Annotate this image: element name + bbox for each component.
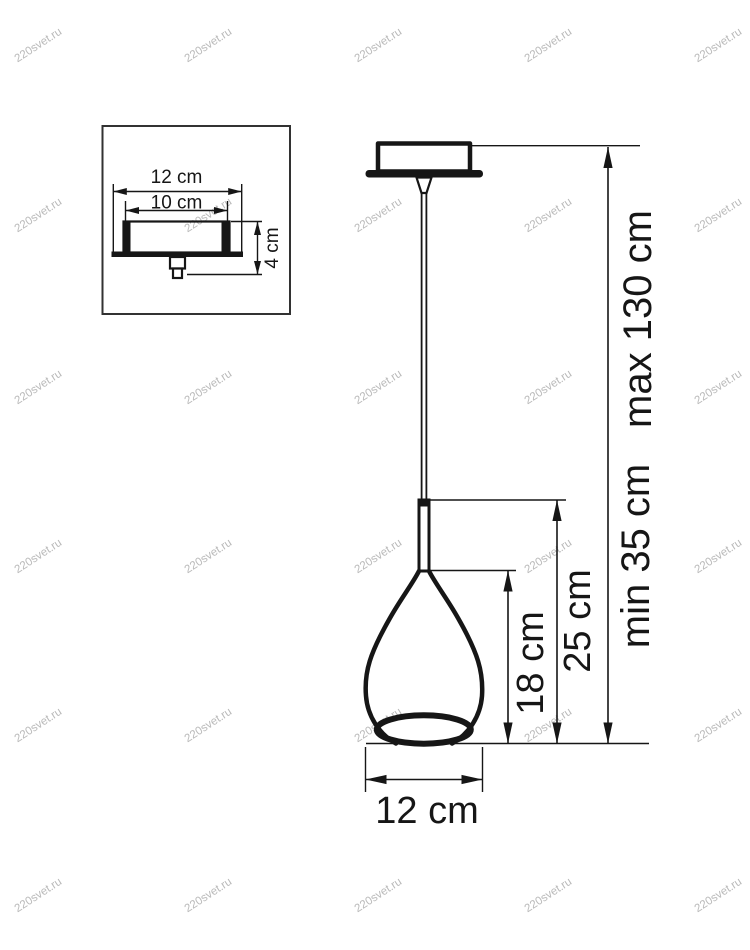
watermark-text: 220svet.ru xyxy=(353,537,405,576)
pendant-drawing xyxy=(366,144,484,744)
main-dimensions: 18 cm 25 cm min 35 cm max 130 cm 12 cm xyxy=(366,146,661,832)
watermark-text: 220svet.ru xyxy=(183,537,235,576)
cord-strain-relief xyxy=(417,178,432,194)
watermark-text: 220svet.ru xyxy=(183,368,235,407)
watermark-text: 220svet.ru xyxy=(353,26,405,65)
arrowhead-down xyxy=(254,261,261,275)
watermark-text: 220svet.ru xyxy=(693,368,745,407)
watermark-text: 220svet.ru xyxy=(353,196,405,235)
watermark-text: 220svet.ru xyxy=(183,876,235,915)
watermark-text: 220svet.ru xyxy=(523,876,575,915)
arrowhead-down xyxy=(603,723,612,744)
watermark-text: 220svet.ru xyxy=(693,196,745,235)
watermark-text: 220svet.ru xyxy=(693,537,745,576)
inset-canopy-body xyxy=(124,222,230,253)
suspension-min-label: min 35 cm xyxy=(614,464,658,649)
watermark-text: 220svet.ru xyxy=(353,368,405,407)
shade-height-label: 18 cm xyxy=(510,611,552,714)
shade-assembly-height-label: 25 cm xyxy=(557,569,599,672)
arrowhead-right xyxy=(228,188,242,195)
arrowhead-up xyxy=(503,571,512,592)
arrowhead-up xyxy=(603,147,612,168)
arrowhead-left xyxy=(126,207,140,214)
shade-width-label: 12 cm xyxy=(375,790,478,832)
watermark-text: 220svet.ru xyxy=(183,26,235,65)
shade-bottom-opening-rim xyxy=(377,715,471,743)
arrowhead-down xyxy=(503,723,512,744)
inset-inner-width-label: 10 cm xyxy=(151,193,203,214)
diagram-page: 220svet.ru220svet.ru220svet.ru220svet.ru… xyxy=(0,0,750,950)
inset-outer-width-label: 12 cm xyxy=(151,167,203,188)
pendant-dimension-diagram: 220svet.ru220svet.ru220svet.ru220svet.ru… xyxy=(0,0,750,950)
arrowhead-up xyxy=(254,222,261,236)
watermark-text: 220svet.ru xyxy=(523,368,575,407)
watermark-text: 220svet.ru xyxy=(693,876,745,915)
watermark-text: 220svet.ru xyxy=(523,26,575,65)
watermark-text: 220svet.ru xyxy=(523,196,575,235)
watermark-text: 220svet.ru xyxy=(13,26,65,65)
arrowhead-up xyxy=(552,500,561,521)
arrowhead-left xyxy=(366,775,387,784)
arrowhead-right xyxy=(462,775,483,784)
watermark-text: 220svet.ru xyxy=(693,26,745,65)
canopy-box xyxy=(378,144,470,172)
watermark-text: 220svet.ru xyxy=(183,706,235,745)
socket-tube xyxy=(419,500,429,571)
watermark-text: 220svet.ru xyxy=(13,196,65,235)
inset-canopy-right-wall xyxy=(222,221,230,253)
inset-cord-grip-lower xyxy=(173,269,182,279)
watermark-text: 220svet.ru xyxy=(13,537,65,576)
socket-cap xyxy=(418,499,431,507)
canopy-flange xyxy=(366,170,484,178)
suspension-max-label: max 130 cm xyxy=(616,210,660,428)
inset-canopy-left-wall xyxy=(123,221,131,253)
inset-cord-grip-upper xyxy=(170,257,185,269)
watermark-text: 220svet.ru xyxy=(13,876,65,915)
watermark-text: 220svet.ru xyxy=(693,706,745,745)
inset-height-label: 4 cm xyxy=(262,227,283,268)
arrowhead-down xyxy=(552,723,561,744)
watermark-text: 220svet.ru xyxy=(13,706,65,745)
arrowhead-left xyxy=(113,188,127,195)
watermark-text: 220svet.ru xyxy=(353,876,405,915)
watermark-text: 220svet.ru xyxy=(13,368,65,407)
